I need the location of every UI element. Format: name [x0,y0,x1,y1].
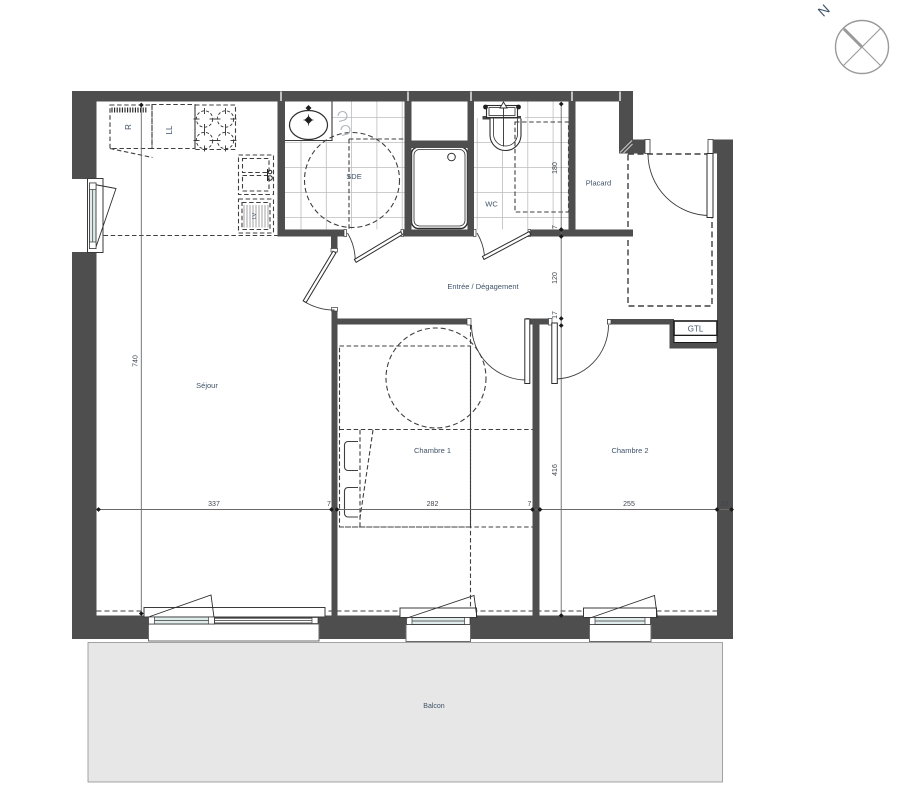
svg-text:Entrée / Dégagement: Entrée / Dégagement [447,282,519,291]
svg-text:Chambre 2: Chambre 2 [611,446,648,455]
svg-text:7: 7 [528,501,532,508]
svg-text:20: 20 [721,501,729,508]
svg-text:120: 120 [552,272,559,284]
svg-text:7: 7 [327,501,331,508]
svg-text:Placard: Placard [586,179,611,188]
svg-text:Balcon: Balcon [423,703,445,710]
svg-text:740: 740 [133,355,140,367]
svg-text:7: 7 [552,225,559,229]
svg-text:282: 282 [427,501,439,508]
svg-text:Séjour: Séjour [196,381,218,390]
svg-text:WC: WC [485,200,498,209]
svg-text:337: 337 [208,501,220,508]
svg-text:Chambre 1: Chambre 1 [414,446,451,455]
svg-text:LL: LL [165,125,174,134]
svg-text:LV: LV [252,213,258,220]
svg-text:R: R [124,124,133,130]
svg-text:255: 255 [623,501,635,508]
svg-text:SDE: SDE [346,172,361,181]
svg-text:GTL: GTL [688,325,704,334]
svg-text:416: 416 [552,464,559,476]
svg-text:180: 180 [552,162,559,174]
svg-text:17: 17 [552,311,559,319]
